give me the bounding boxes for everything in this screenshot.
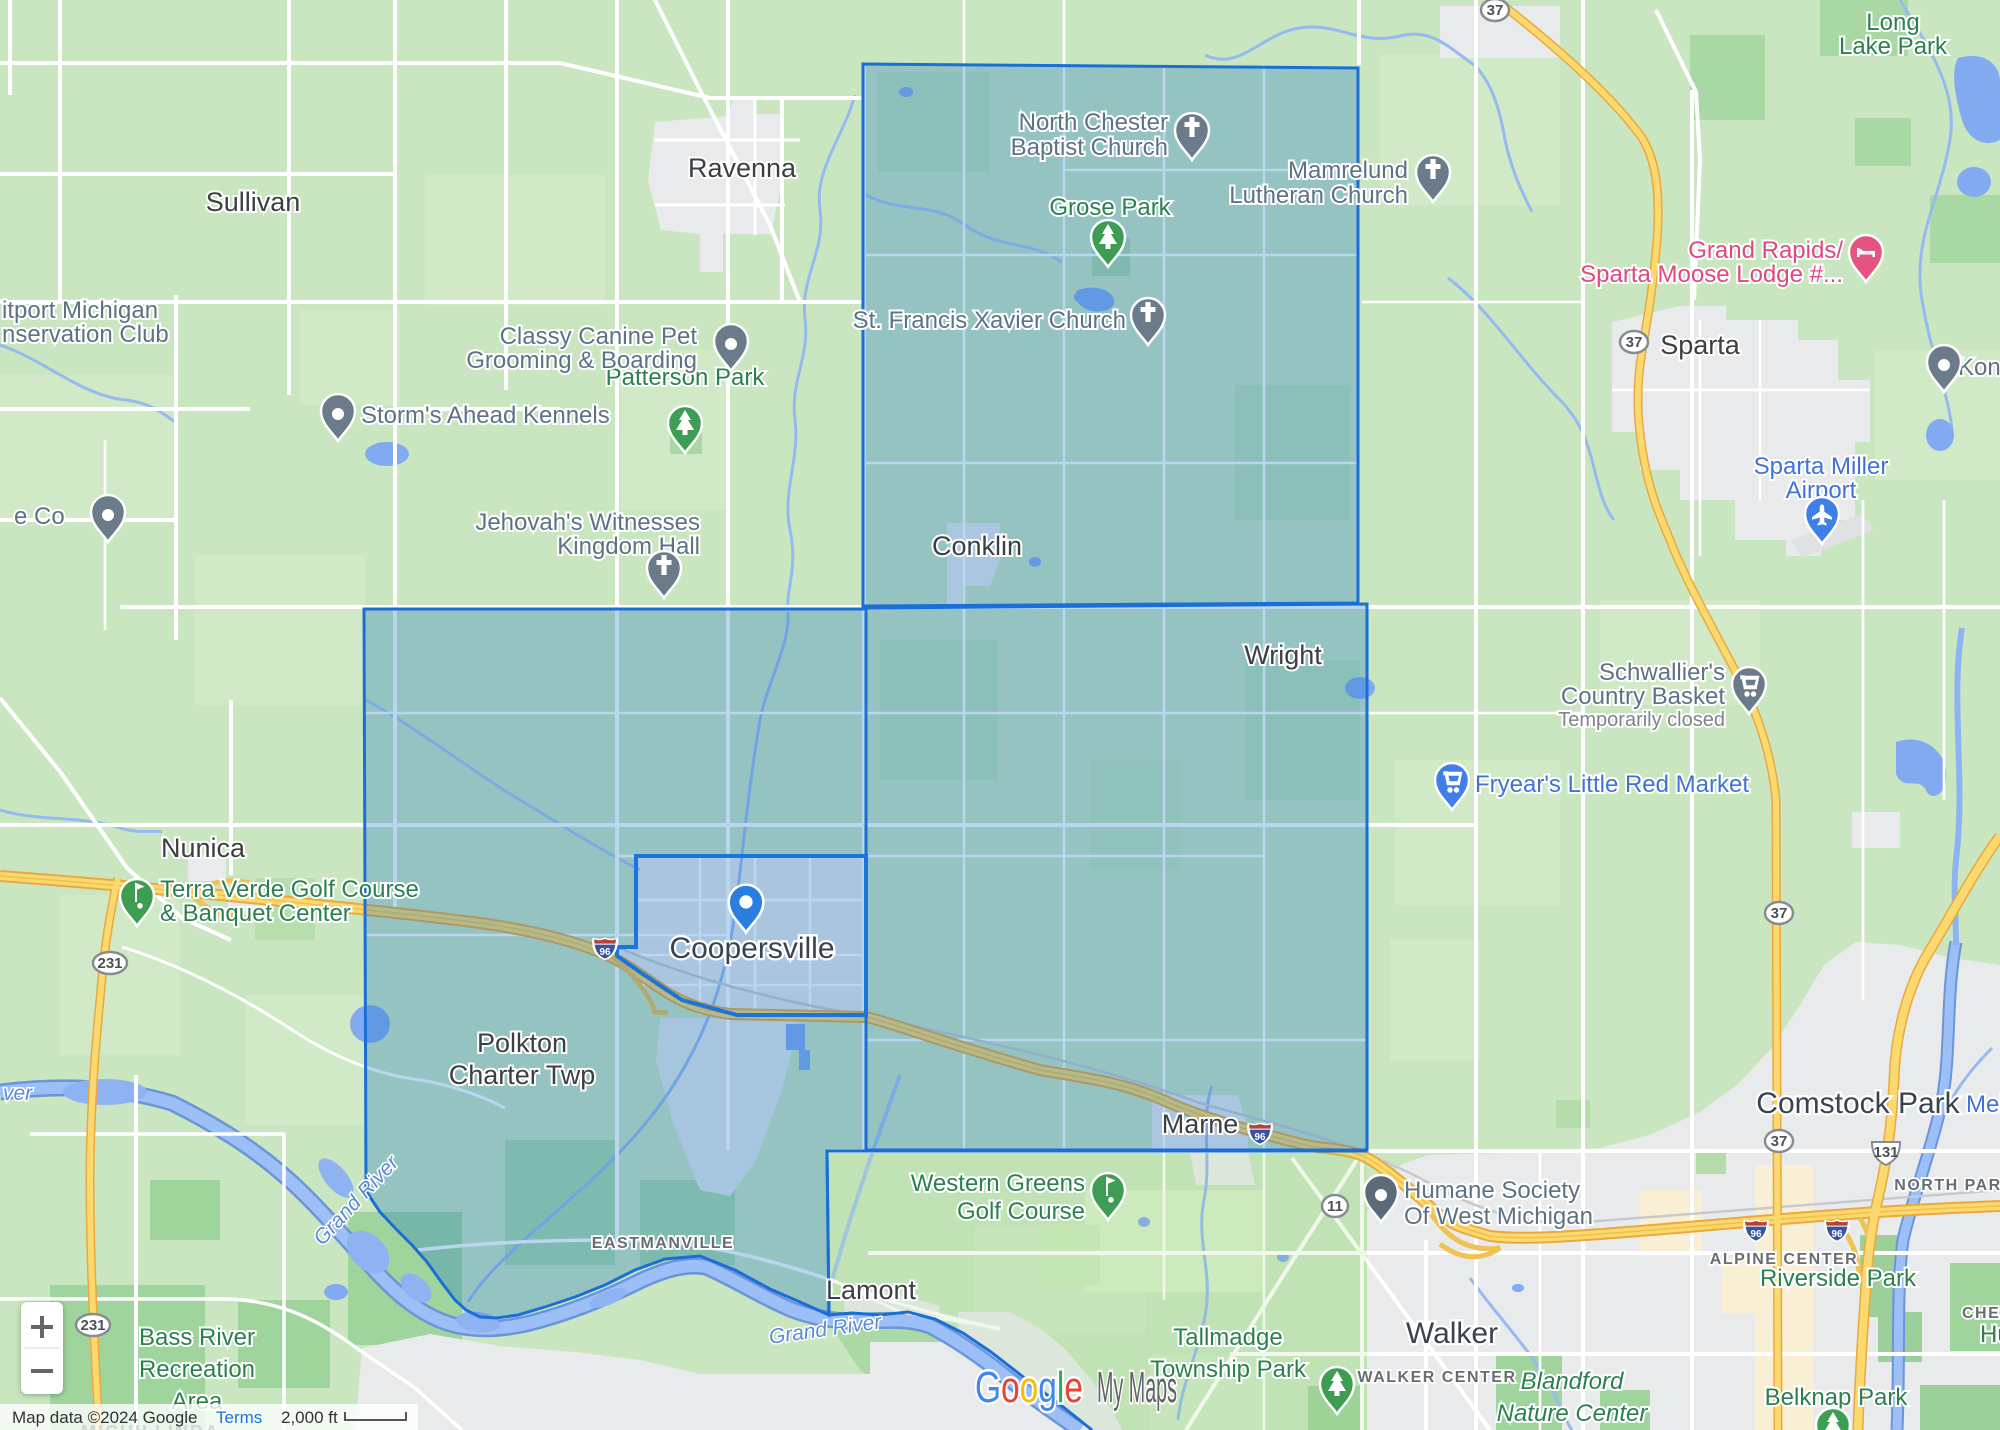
svg-text:37: 37 [1487, 2, 1504, 19]
svg-text:Kona's K9: Kona's K9 [1958, 354, 2000, 381]
svg-text:Lutheran Church: Lutheran Church [1229, 182, 1408, 209]
svg-text:11: 11 [1327, 1198, 1343, 1215]
svg-text:Google: Google [975, 1363, 1083, 1412]
svg-text:Conklin: Conklin [932, 531, 1022, 561]
svg-text:37: 37 [1771, 1133, 1788, 1150]
svg-text:My Maps: My Maps [1097, 1363, 1177, 1412]
svg-text:Humane Society: Humane Society [1404, 1177, 1580, 1204]
svg-text:Sparta Moose Lodge #...: Sparta Moose Lodge #... [1580, 261, 1843, 288]
svg-text:Temporarily closed: Temporarily closed [1558, 709, 1725, 731]
svg-text:Grand Rapids/: Grand Rapids/ [1688, 237, 1843, 264]
svg-text:37: 37 [1771, 905, 1788, 922]
svg-text:Blandford: Blandford [1521, 1368, 1624, 1395]
svg-text:Grooming & Boarding: Grooming & Boarding [466, 347, 697, 374]
svg-text:Hu: Hu [1980, 1321, 2000, 1348]
svg-text:Sparta: Sparta [1660, 330, 1741, 360]
svg-text:Storm's Ahead Kennels: Storm's Ahead Kennels [361, 402, 610, 429]
svg-text:2,000 ft: 2,000 ft [281, 1408, 338, 1427]
svg-text:Comstock Park: Comstock Park [1756, 1087, 1960, 1120]
svg-text:CHESH: CHESH [1962, 1305, 2000, 1322]
svg-text:Bass River: Bass River [139, 1324, 255, 1351]
svg-text:Lamont: Lamont [826, 1275, 917, 1305]
svg-text:Riverside Park: Riverside Park [1760, 1265, 1917, 1292]
svg-text:Lake Park: Lake Park [1839, 33, 1948, 60]
svg-text:Long: Long [1866, 9, 1919, 36]
svg-text:Mamrelund: Mamrelund [1288, 157, 1408, 184]
svg-text:EASTMANVILLE: EASTMANVILLE [592, 1235, 734, 1252]
svg-text:Recreation: Recreation [139, 1356, 255, 1383]
svg-text:Golf Course: Golf Course [957, 1198, 1085, 1225]
svg-text:Jehovah's Witnesses: Jehovah's Witnesses [475, 509, 700, 536]
svg-text:nservation Club: nservation Club [2, 321, 169, 348]
svg-text:North Chester: North Chester [1019, 109, 1168, 136]
svg-text:Terms: Terms [216, 1408, 262, 1427]
svg-text:Fryear's Little Red Market: Fryear's Little Red Market [1475, 771, 1749, 798]
svg-text:Grose Park: Grose Park [1049, 194, 1171, 221]
svg-text:Map data ©2024 Google: Map data ©2024 Google [12, 1408, 198, 1427]
svg-text:e Co: e Co [14, 503, 65, 530]
svg-text:Sullivan: Sullivan [206, 187, 301, 217]
svg-text:Nature Center: Nature Center [1497, 1400, 1649, 1427]
svg-text:Sparta Miller: Sparta Miller [1754, 453, 1889, 480]
svg-text:Polkton: Polkton [477, 1028, 567, 1058]
svg-text:Nunica: Nunica [161, 833, 246, 863]
svg-text:Walker: Walker [1406, 1317, 1498, 1350]
svg-text:Classy Canine Pet: Classy Canine Pet [500, 323, 698, 350]
svg-text:Coopersville: Coopersville [669, 932, 834, 965]
svg-text:Terra Verde Golf Course: Terra Verde Golf Course [160, 876, 419, 903]
svg-text:Marne: Marne [1162, 1109, 1239, 1139]
svg-text:& Banquet Center: & Banquet Center [160, 900, 351, 927]
svg-text:131: 131 [1873, 1144, 1898, 1161]
svg-text:Schwallier's: Schwallier's [1599, 659, 1725, 686]
svg-text:Baptist Church: Baptist Church [1011, 134, 1168, 161]
svg-text:231: 231 [97, 955, 122, 972]
svg-text:ver: ver [3, 1082, 33, 1105]
svg-text:Western Greens: Western Greens [911, 1170, 1085, 1197]
svg-text:Tallmadge: Tallmadge [1173, 1324, 1282, 1351]
svg-text:Mei: Mei [1966, 1091, 2000, 1118]
svg-text:Kingdom Hall: Kingdom Hall [557, 533, 700, 560]
svg-text:Country Basket: Country Basket [1561, 683, 1725, 710]
svg-text:Belknap Park: Belknap Park [1765, 1384, 1909, 1411]
svg-text:Ravenna: Ravenna [688, 153, 797, 183]
svg-text:WALKER CENTER: WALKER CENTER [1357, 1369, 1516, 1386]
svg-text:Of West Michigan: Of West Michigan [1404, 1203, 1593, 1230]
svg-text:231: 231 [80, 1317, 105, 1334]
svg-text:St. Francis Xavier Church: St. Francis Xavier Church [853, 307, 1126, 334]
svg-text:NORTH PAR: NORTH PAR [1894, 1177, 2000, 1194]
svg-text:Charter Twp: Charter Twp [449, 1060, 596, 1090]
svg-text:Wright: Wright [1244, 640, 1322, 670]
svg-text:37: 37 [1626, 334, 1643, 351]
svg-text:itport Michigan: itport Michigan [2, 297, 158, 324]
